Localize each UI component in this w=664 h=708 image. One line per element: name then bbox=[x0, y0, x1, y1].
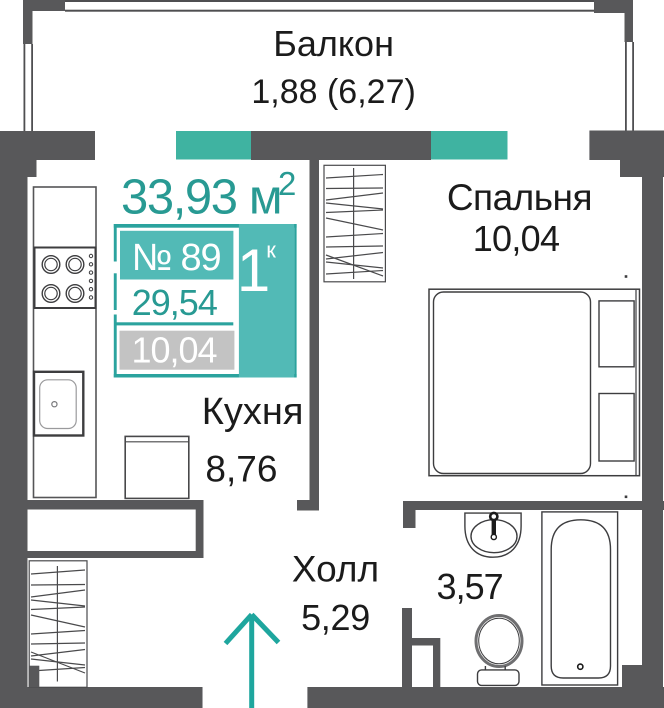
svg-text:33,93 м: 33,93 м bbox=[121, 171, 281, 225]
svg-text:Холл: Холл bbox=[292, 549, 379, 590]
svg-text:2: 2 bbox=[278, 165, 296, 202]
svg-text:10,04: 10,04 bbox=[131, 330, 216, 371]
svg-text:Спальня: Спальня bbox=[447, 177, 592, 218]
svg-text:к: к bbox=[266, 238, 276, 263]
svg-text:8,76: 8,76 bbox=[205, 449, 277, 490]
svg-text:29,54: 29,54 bbox=[132, 282, 217, 323]
svg-text:1: 1 bbox=[237, 237, 270, 304]
svg-text:10,04: 10,04 bbox=[473, 218, 560, 259]
svg-text:№ 89: № 89 bbox=[132, 237, 221, 279]
svg-text:3,57: 3,57 bbox=[437, 566, 503, 607]
svg-text:Балкон: Балкон bbox=[273, 23, 394, 64]
svg-text:1,88 (6,27): 1,88 (6,27) bbox=[251, 73, 415, 111]
svg-text:Кухня: Кухня bbox=[202, 391, 304, 433]
svg-text:5,29: 5,29 bbox=[301, 597, 370, 638]
